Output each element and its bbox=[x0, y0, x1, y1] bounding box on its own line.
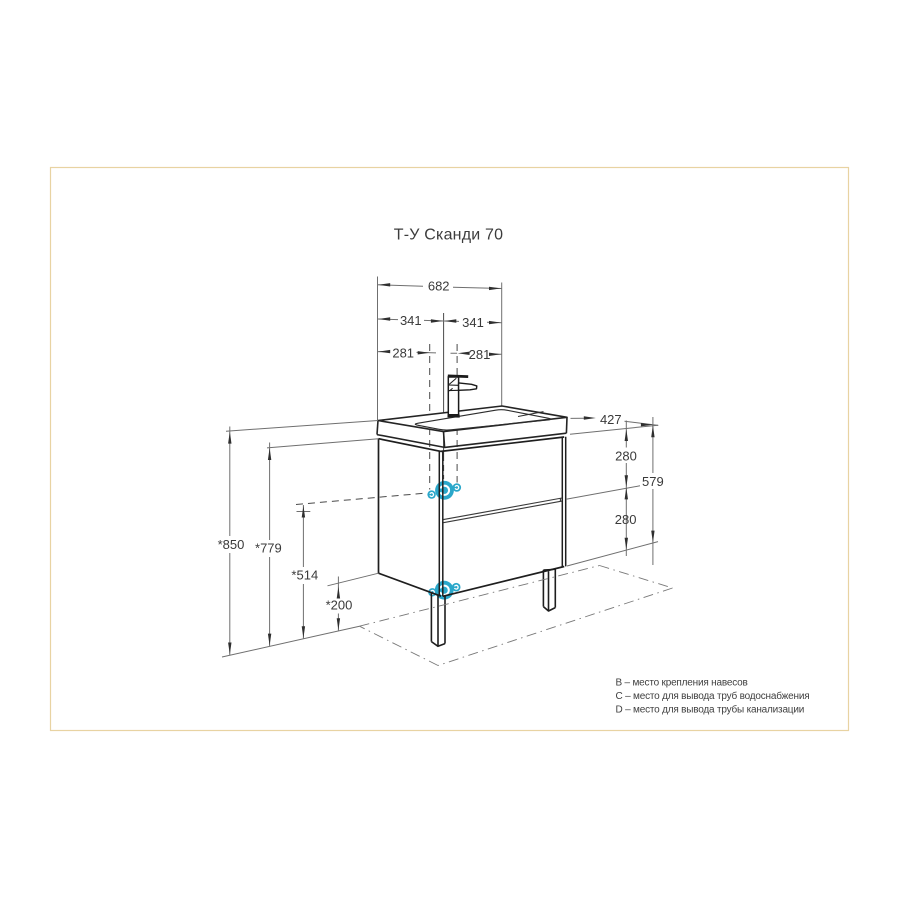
svg-text:341: 341 bbox=[462, 315, 484, 330]
svg-text:D – место для вывода трубы кан: D – место для вывода трубы канализации bbox=[616, 704, 805, 716]
svg-text:281: 281 bbox=[469, 347, 491, 362]
svg-text:*779: *779 bbox=[255, 541, 282, 556]
svg-text:280: 280 bbox=[615, 448, 637, 463]
svg-text:Т-У Сканди 70: Т-У Сканди 70 bbox=[394, 227, 503, 244]
svg-text:*200: *200 bbox=[326, 597, 353, 612]
svg-text:280: 280 bbox=[615, 512, 637, 527]
svg-text:281: 281 bbox=[392, 345, 414, 360]
svg-text:*514: *514 bbox=[291, 567, 318, 582]
svg-text:682: 682 bbox=[428, 278, 450, 293]
svg-text:341: 341 bbox=[400, 313, 422, 328]
svg-text:427: 427 bbox=[600, 412, 622, 427]
svg-text:*850: *850 bbox=[218, 537, 245, 552]
svg-text:C – место для вывода труб водо: C – место для вывода труб водоснабжения bbox=[616, 690, 810, 702]
svg-text:B – место крепления навесов: B – место крепления навесов bbox=[616, 678, 748, 689]
svg-text:579: 579 bbox=[642, 474, 664, 489]
